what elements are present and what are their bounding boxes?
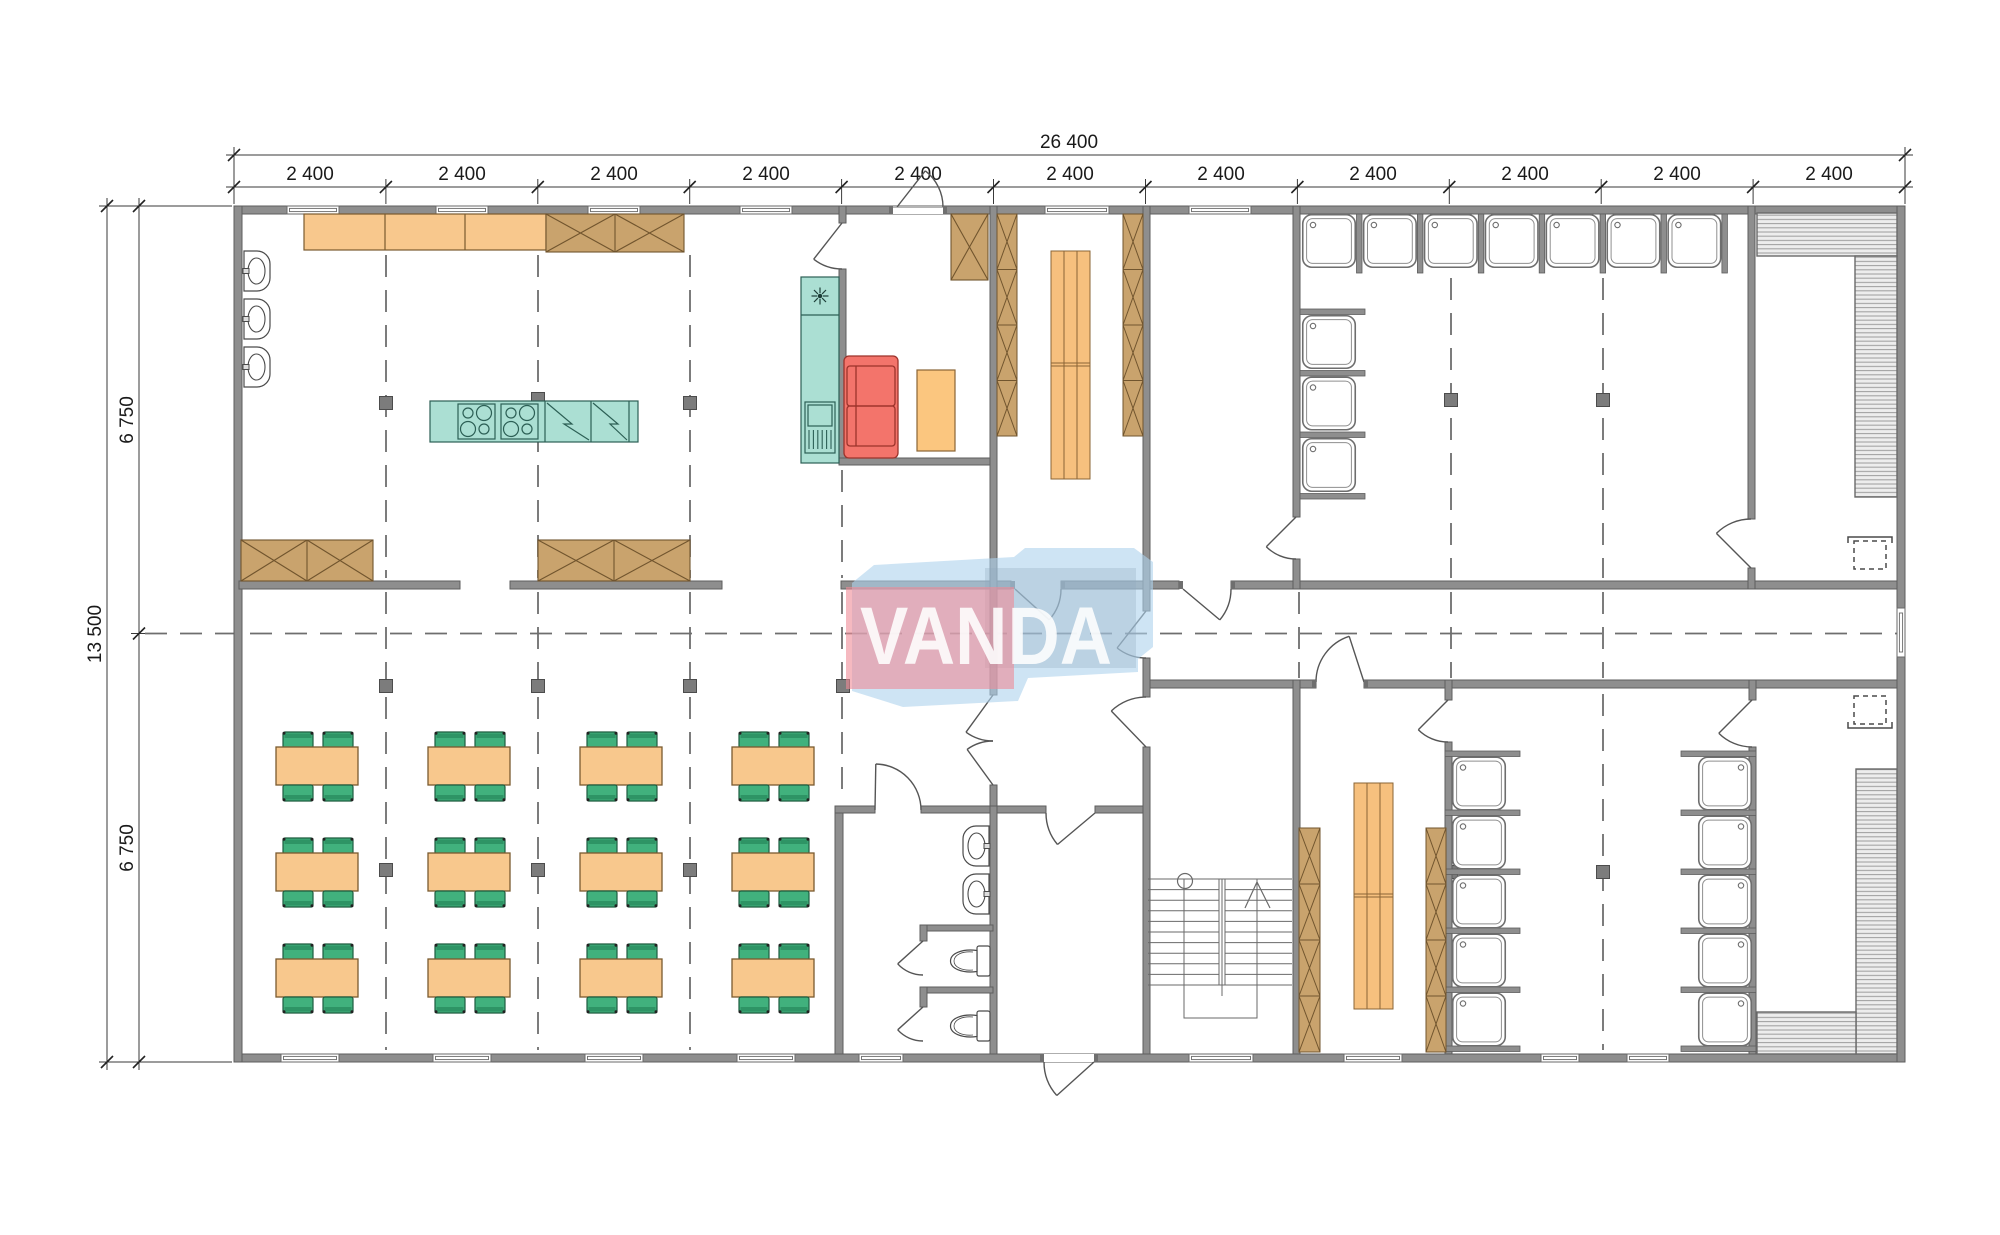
svg-text:26 400: 26 400 (1040, 132, 1098, 153)
svg-text:2 400: 2 400 (1653, 164, 1701, 185)
svg-text:2 400: 2 400 (742, 164, 790, 185)
svg-text:2 400: 2 400 (1046, 164, 1094, 185)
svg-text:6 750: 6 750 (117, 824, 138, 872)
svg-text:2 400: 2 400 (1501, 164, 1549, 185)
svg-text:6 750: 6 750 (117, 396, 138, 444)
svg-text:2 400: 2 400 (1805, 164, 1853, 185)
svg-text:2 400: 2 400 (286, 164, 334, 185)
svg-text:VANDA: VANDA (860, 591, 1112, 682)
svg-text:2 400: 2 400 (590, 164, 638, 185)
svg-text:2 400: 2 400 (438, 164, 486, 185)
svg-text:2 400: 2 400 (894, 164, 942, 185)
svg-text:13 500: 13 500 (85, 605, 106, 663)
svg-text:2 400: 2 400 (1197, 164, 1245, 185)
svg-text:2 400: 2 400 (1349, 164, 1397, 185)
